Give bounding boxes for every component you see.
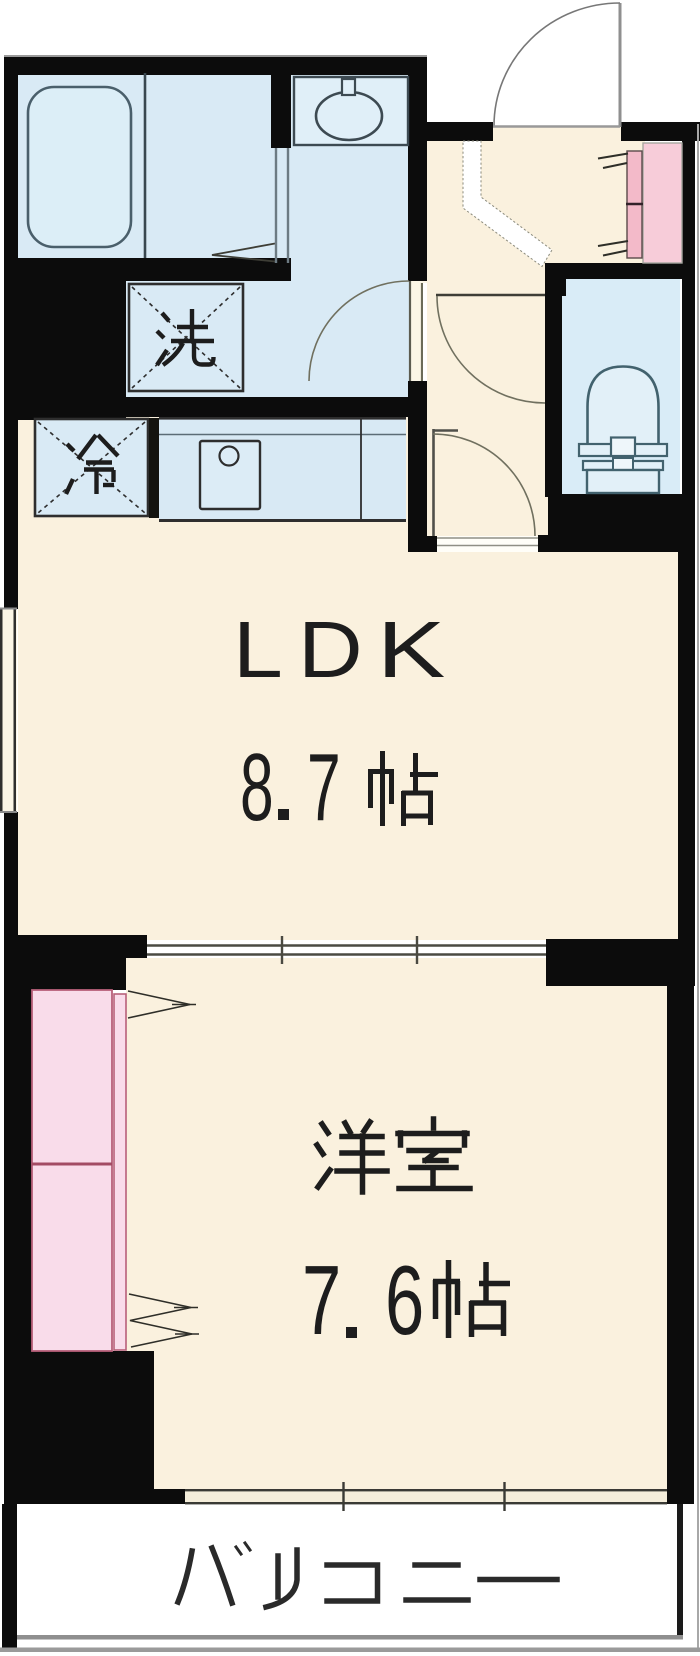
svg-text:6: 6	[385, 1247, 424, 1356]
svg-text:7: 7	[302, 1247, 341, 1356]
svg-text:8: 8	[240, 734, 274, 842]
svg-text:D: D	[298, 604, 363, 693]
svg-text:K: K	[377, 606, 445, 695]
svg-text:7: 7	[307, 734, 341, 842]
svg-text:L: L	[233, 604, 283, 693]
